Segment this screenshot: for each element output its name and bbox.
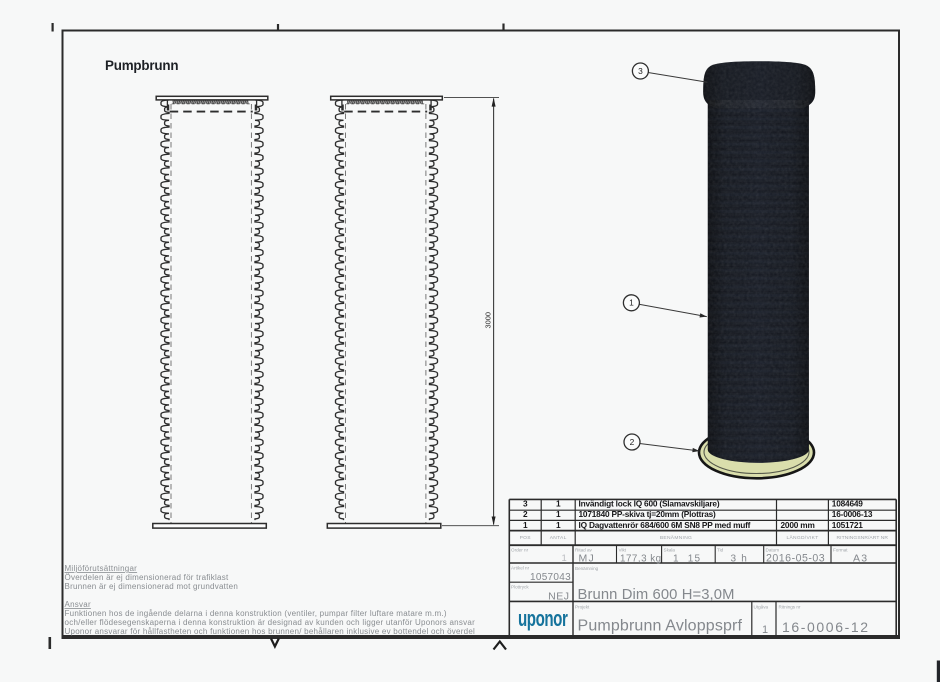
svg-text:Plottryck: Plottryck: [511, 585, 529, 590]
svg-text:POS: POS: [520, 535, 532, 541]
svg-text:2000 mm: 2000 mm: [781, 520, 815, 530]
svg-text:Uponor ansvarar för hållfasthe: Uponor ansvarar för hållfastheten och fu…: [65, 627, 476, 636]
svg-text:uponor: uponor: [518, 607, 568, 631]
svg-text:3: 3: [638, 66, 643, 76]
svg-text:1: 1: [562, 553, 568, 564]
svg-text:1084649: 1084649: [832, 499, 863, 509]
svg-text:Benämning: Benämning: [575, 566, 599, 571]
svg-text:Vikt: Vikt: [619, 548, 627, 553]
svg-text:Invändigt lock IQ 600 (Slamavs: Invändigt lock IQ 600 (Slamavskiljare): [579, 499, 720, 509]
svg-text:A3: A3: [853, 553, 868, 565]
svg-text:1: 1: [629, 298, 634, 308]
svg-text:3: 3: [523, 499, 528, 509]
svg-text:1: 1: [556, 509, 561, 519]
svg-text:Projekt: Projekt: [575, 605, 590, 610]
svg-text:2016-05-03: 2016-05-03: [766, 553, 825, 565]
svg-text:Skala: Skala: [664, 548, 676, 553]
svg-text:2: 2: [630, 437, 635, 447]
svg-text:Utgåva: Utgåva: [754, 604, 769, 610]
svg-text:1051721: 1051721: [832, 520, 863, 530]
svg-text:Ansvar: Ansvar: [65, 600, 91, 609]
svg-text:Order nr: Order nr: [511, 548, 529, 553]
svg-text:MJ: MJ: [579, 553, 595, 565]
svg-text:Överdelen är ej dimensionerad: Överdelen är ej dimensionerad för trafik…: [65, 573, 229, 582]
svg-text:1: 1: [523, 520, 528, 530]
svg-text:BENÄMNING: BENÄMNING: [660, 534, 692, 541]
svg-text:Pumpbrunn Avloppsprf: Pumpbrunn Avloppsprf: [578, 618, 743, 635]
svg-text:1057043: 1057043: [530, 572, 571, 583]
svg-text:Funktionen hos de ingående del: Funktionen hos de ingående delarna i den…: [65, 609, 447, 618]
svg-text:16-0006-12: 16-0006-12: [782, 619, 870, 635]
svg-text:Artikel nr: Artikel nr: [511, 566, 530, 571]
svg-text:1: 1: [556, 499, 561, 509]
svg-text:LÄNGD/VIKT: LÄNGD/VIKT: [786, 534, 818, 541]
svg-text:Tid: Tid: [717, 548, 724, 553]
svg-text:1 15: 1 15: [673, 554, 701, 565]
svg-text:RITNINGSNR/ART NR: RITNINGSNR/ART NR: [837, 535, 889, 541]
svg-text:2: 2: [523, 509, 528, 519]
svg-text:Format: Format: [833, 548, 848, 553]
svg-text:NEJ: NEJ: [548, 590, 569, 602]
svg-text:3000: 3000: [483, 312, 492, 328]
svg-text:Brunnen är ej dimensionerad mo: Brunnen är ej dimensionerad mot grundvat…: [65, 582, 239, 591]
svg-text:Brunn Dim 600 H=3,0M: Brunn Dim 600 H=3,0M: [578, 587, 735, 603]
svg-text:ANTAL: ANTAL: [550, 535, 567, 541]
svg-text:och/eller flödesegenskaperna i: och/eller flödesegenskaperna i denna kon…: [65, 618, 476, 627]
svg-text:1071840 PP-skiva tj=20mm (Pl: 1071840 PP-skiva tj=20mm (Plottras): [579, 509, 717, 519]
svg-text:3 h: 3 h: [731, 554, 749, 565]
svg-text:177,3 kg: 177,3 kg: [620, 554, 662, 565]
svg-text:Pumpbrunn: Pumpbrunn: [105, 58, 178, 73]
svg-text:Miljöförutsättningar: Miljöförutsättningar: [65, 564, 138, 573]
svg-text:Ritnings nr: Ritnings nr: [779, 605, 801, 610]
svg-text:16-0006-13: 16-0006-13: [832, 509, 873, 519]
svg-text:IQ Dagvattenrör 684/600 6M SN8: IQ Dagvattenrör 684/600 6M SN8 PP med mu…: [579, 520, 751, 530]
svg-text:1: 1: [762, 624, 769, 636]
svg-text:1: 1: [556, 520, 561, 530]
